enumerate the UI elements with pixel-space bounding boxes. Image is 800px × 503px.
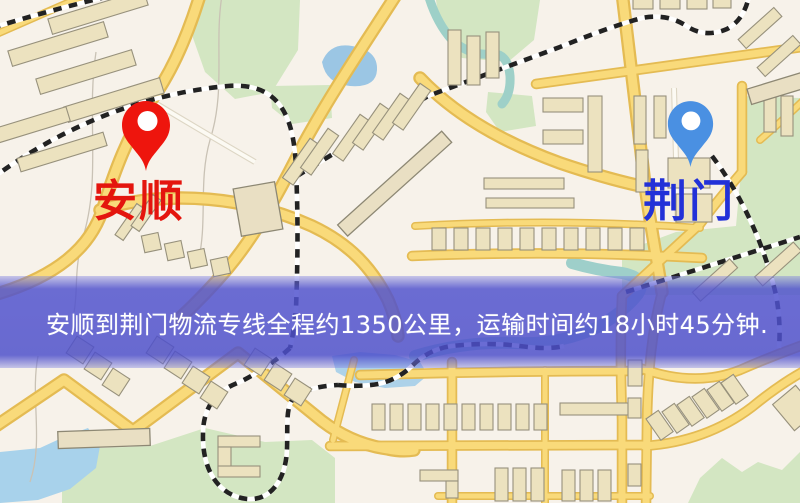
route-info-banner: 安顺到荆门物流专线全程约1350公里，运输时间约18小时45分钟. xyxy=(0,276,800,368)
route-info-text: 安顺到荆门物流专线全程约1350公里，运输时间约18小时45分钟. xyxy=(0,305,768,340)
origin-city-label: 安顺 xyxy=(93,180,185,224)
destination-city-label: 荆门 xyxy=(643,180,735,224)
origin-pin-icon xyxy=(120,101,172,173)
map-image: 安顺到荆门物流专线全程约1350公里，运输时间约18小时45分钟. 安顺 荆门 xyxy=(0,0,800,503)
destination-pin-icon xyxy=(666,101,715,169)
map-canvas xyxy=(0,0,800,503)
